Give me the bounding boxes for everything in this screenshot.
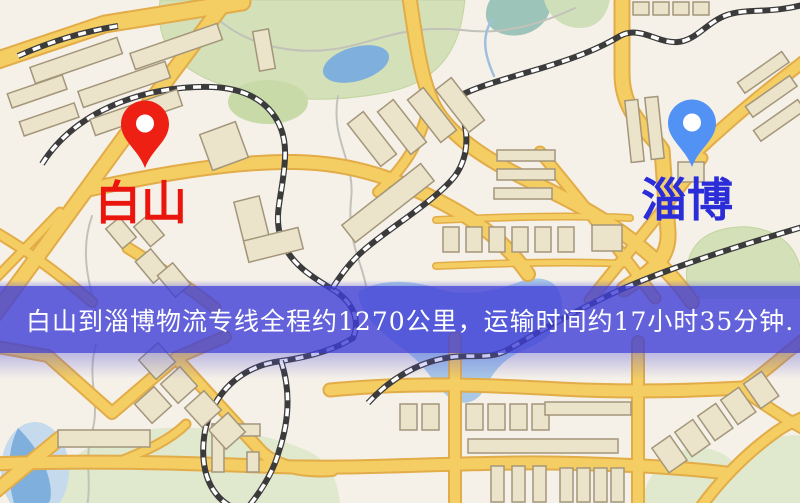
route-info-banner: 白山到淄博物流专线全程约1270公里，运输时间约17小时35分钟. (0, 286, 800, 353)
destination-pin-shape (668, 100, 716, 168)
destination-pin-icon[interactable] (666, 98, 718, 168)
route-info-text: 白山到淄博物流专线全程约1270公里，运输时间约17小时35分钟. (26, 302, 794, 338)
destination-label: 淄博 (641, 177, 733, 223)
map-image: 白山 淄博 白山到淄博物流专线全程约1270公里，运输时间约17小时35分钟. (0, 0, 800, 503)
destination-pin-dot (683, 114, 701, 132)
origin-pin-dot (136, 115, 154, 133)
map-background (0, 0, 800, 503)
origin-pin-shape (121, 101, 169, 169)
origin-pin-icon[interactable] (119, 99, 171, 169)
origin-label: 白山 (95, 180, 187, 226)
